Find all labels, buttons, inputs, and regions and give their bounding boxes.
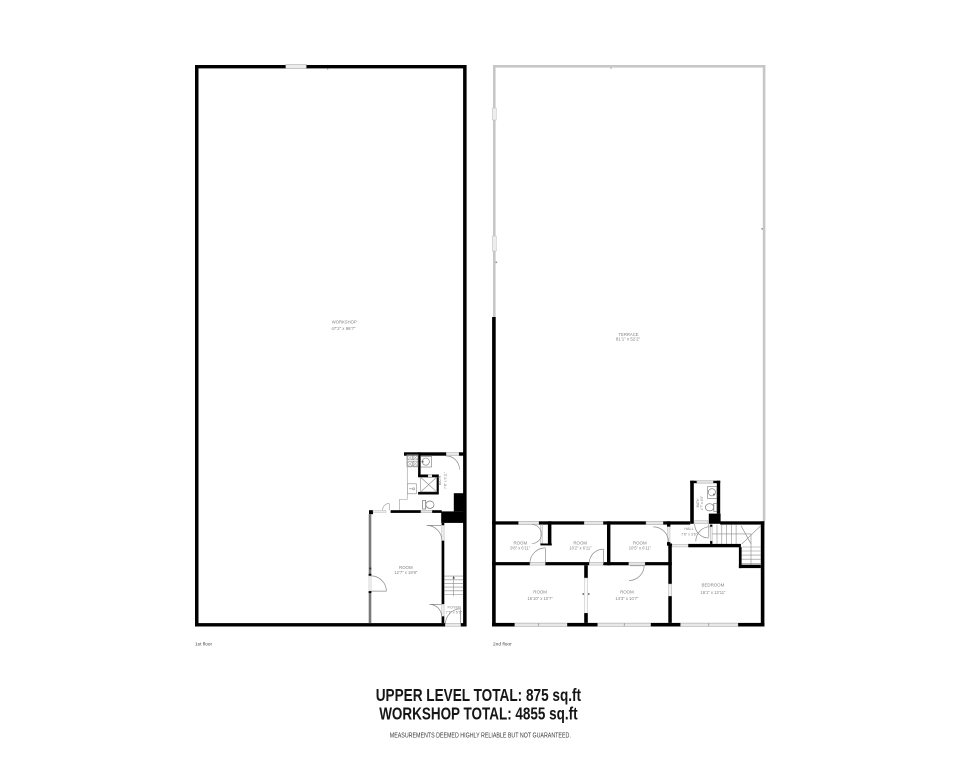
svg-text:BATH: BATH (438, 475, 442, 485)
svg-text:47’2” x 98’7”: 47’2” x 98’7” (331, 326, 356, 331)
svg-text:ROOM: ROOM (633, 540, 647, 545)
svg-text:ROOM: ROOM (513, 540, 527, 545)
svg-text:TERRACE: TERRACE (618, 332, 638, 337)
svg-text:16’1” x 13’11”: 16’1” x 13’11” (700, 590, 726, 595)
svg-text:ROOM: ROOM (533, 590, 547, 595)
svg-text:WORKSHOP TOTAL: 4855 sq.ft: WORKSHOP TOTAL: 4855 sq.ft (379, 703, 578, 723)
svg-text:15’10” x 10’7”: 15’10” x 10’7” (527, 596, 553, 601)
svg-text:BATH: BATH (696, 498, 700, 507)
svg-text:14’3” x 10’7”: 14’3” x 10’7” (615, 596, 639, 601)
svg-text:MEASUREMENTS DEEMED HIGHLY REL: MEASUREMENTS DEEMED HIGHLY RELIABLE BUT … (390, 733, 571, 740)
svg-text:4’7” x 6’9”: 4’7” x 6’9” (700, 496, 704, 510)
svg-text:ROOM: ROOM (620, 590, 634, 595)
svg-text:1st floor: 1st floor (195, 641, 212, 647)
svg-text:HALL: HALL (684, 527, 693, 531)
svg-text:2nd floor: 2nd floor (493, 641, 512, 647)
svg-text:WORKSHOP: WORKSHOP (332, 320, 357, 325)
svg-text:ROOM: ROOM (573, 540, 587, 545)
svg-text:81’1” x 52’2”: 81’1” x 52’2” (616, 337, 641, 342)
svg-text:UPPER LEVEL TOTAL: 875 sq.ft: UPPER LEVEL TOTAL: 875 sq.ft (376, 685, 582, 705)
svg-text:7’6” x 3’6”: 7’6” x 3’6” (681, 532, 698, 536)
svg-text:BEDROOM: BEDROOM (702, 582, 725, 587)
svg-text:9’8” x 6’11”: 9’8” x 6’11” (510, 546, 531, 551)
svg-text:10’5” x 6’11”: 10’5” x 6’11” (629, 546, 652, 551)
svg-text:10’2” x 6’11”: 10’2” x 6’11” (569, 546, 592, 551)
svg-text:12’7” x 19’9”: 12’7” x 19’9” (394, 570, 418, 575)
svg-text:7’8” x 9’11”: 7’8” x 9’11” (443, 471, 447, 489)
svg-text:ROOM: ROOM (399, 565, 413, 570)
